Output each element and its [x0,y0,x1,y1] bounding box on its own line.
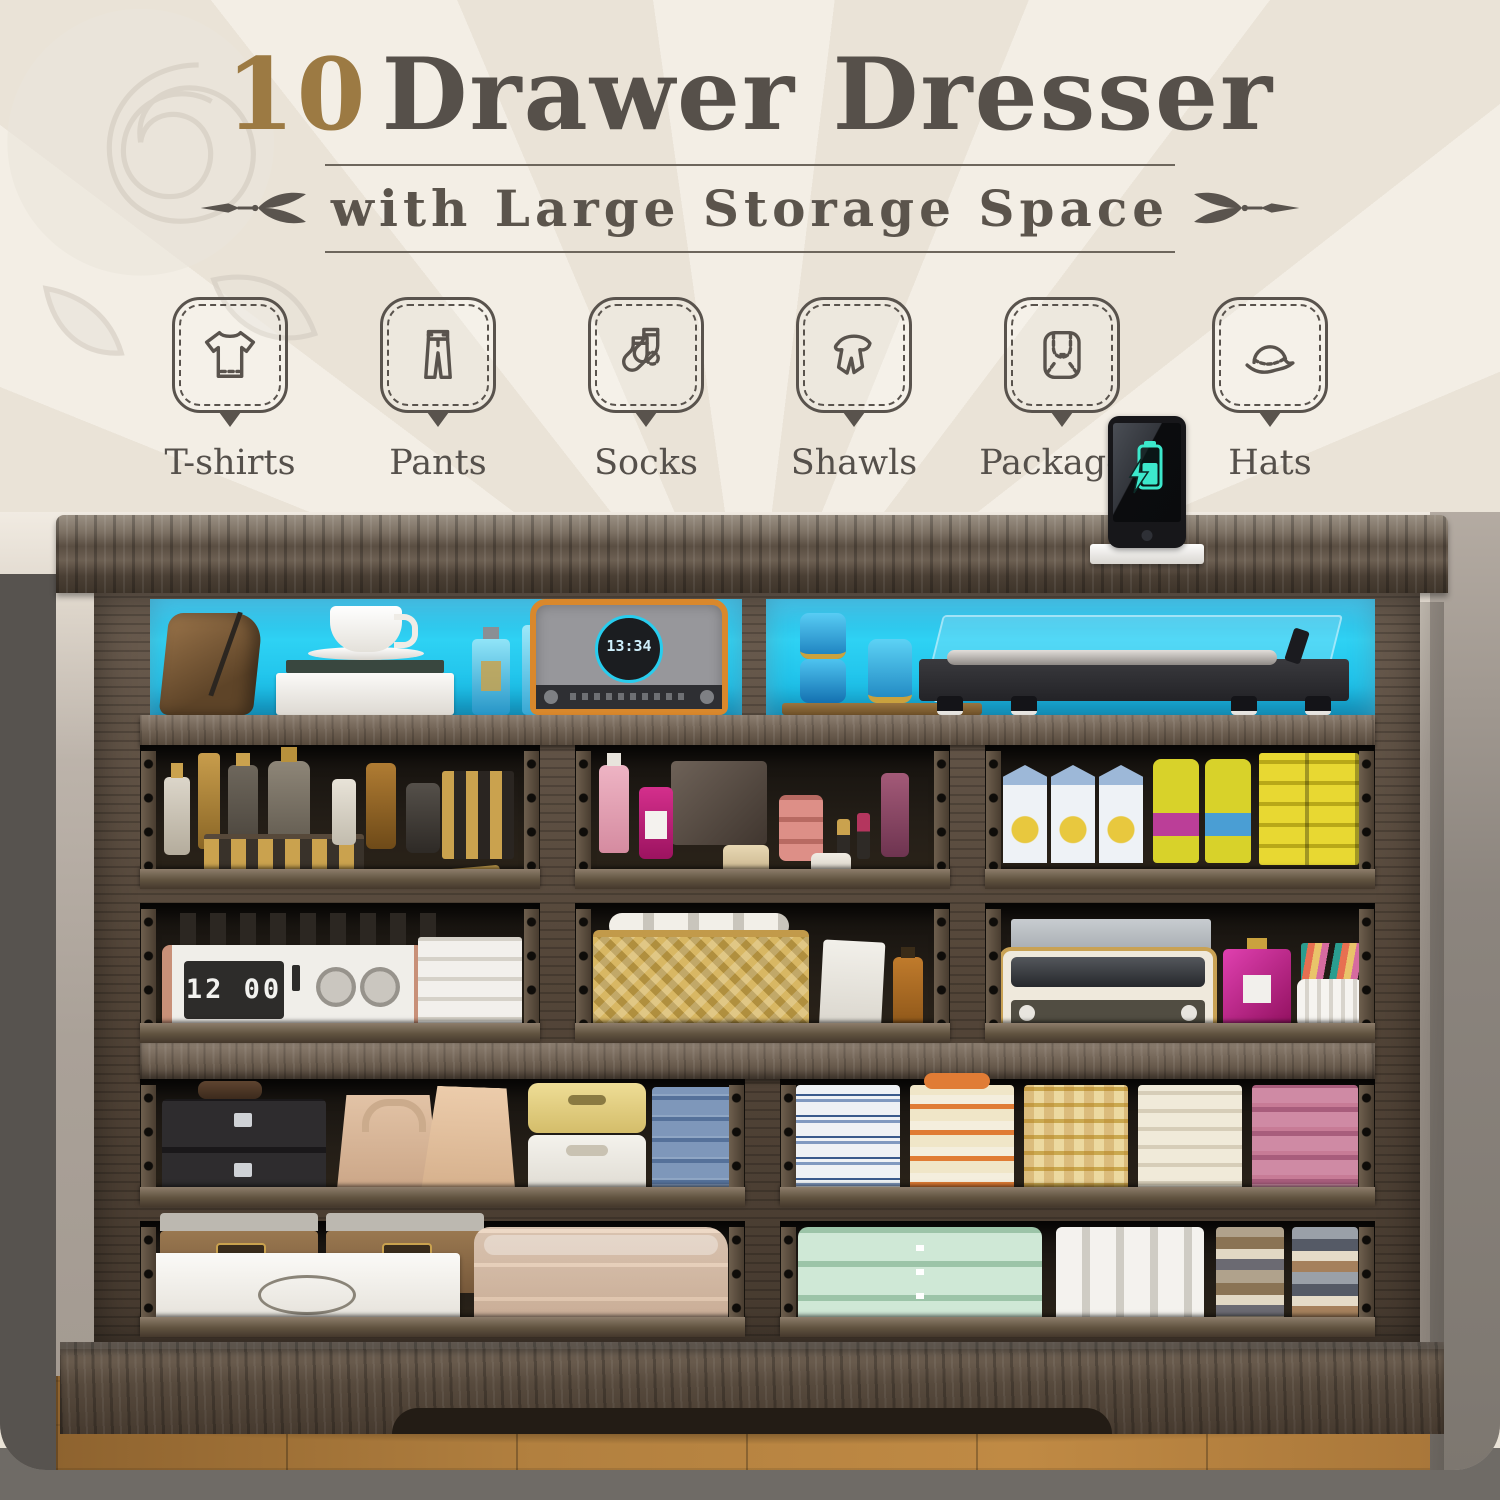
item-white-books [418,937,522,1037]
item-bottle [332,779,356,845]
phone-home-button [1142,530,1153,541]
drawer-r1-left [140,745,540,889]
drawer-front [140,869,540,889]
detail [234,1163,252,1177]
detail [208,612,242,697]
ornament-right-icon [1183,183,1303,233]
detail [316,967,356,1007]
drawer-r3-right [780,1079,1375,1207]
drawer-front [575,869,950,889]
item-blue-jar [868,639,912,703]
detail [394,614,418,648]
feature-label: T-shirts [164,443,295,483]
drawer-r3-left [140,1079,745,1207]
item-yellow-bin [528,1083,646,1133]
charging-phone [1108,416,1186,548]
detail [568,1095,606,1105]
item-yellow-canister [1153,759,1199,863]
base-arch-cutout [392,1408,1112,1434]
item-shirt-stack-pink [1252,1085,1358,1199]
feature-label: Hats [1228,443,1311,483]
flip-clock-display: 12 00 [184,961,284,1019]
shawl-icon [796,297,912,413]
item-lipstick [857,813,870,859]
detail [536,685,722,709]
title-text: Drawer Dresser [382,37,1275,153]
drawer-front [985,869,1375,889]
drawer-front [140,1317,745,1337]
feature-tshirts: T-shirts [154,297,306,483]
detail [160,1213,318,1231]
product-infographic: 10Drawer Dresser with Large Storage Spac… [0,0,1500,1500]
detail [1019,1005,1035,1021]
detail [544,690,558,704]
detail [924,1073,990,1089]
item-shirt-stack-orange [910,1085,1014,1199]
item-shirt-stack-plaid [1024,1085,1128,1199]
feature-pants: Pants [362,297,514,483]
item-pens [1301,943,1361,983]
item-leather-bag [159,613,264,715]
feature-row: T-shirts Pants S [0,297,1500,483]
item-carton [1003,765,1047,863]
drawer-r1-right [985,745,1375,889]
item-mirror-palette [671,761,767,845]
item-beige-blanket [474,1227,728,1331]
item-vintage-radio [999,947,1217,1035]
dresser-base [60,1342,1444,1434]
detail [1181,1005,1197,1021]
item-yellow-canister [1205,759,1251,863]
shelf-board [140,715,1375,745]
item-teacup [330,606,402,652]
drawer-r2-middle [575,903,950,1043]
phone-screen [1113,423,1181,522]
item-shirt-stack-cream [1138,1085,1242,1199]
subtitle: with Large Storage Space [325,179,1175,238]
charging-battery-icon [1127,437,1169,499]
item-yellow-box-stack [1259,753,1359,865]
item-record-player [919,615,1349,715]
detail [919,659,1349,701]
drawer-r4-right [780,1221,1375,1337]
item-perfume-cube [1223,949,1291,1029]
item-jewellery-boxes [162,1099,326,1199]
subtitle-block: with Large Storage Space [325,164,1175,253]
radio-clock-display: 13:34 [595,615,663,683]
detail [481,661,501,691]
hat-icon [1212,297,1328,413]
item-blue-jar [800,659,846,703]
detail [362,1099,426,1132]
item-perfume-bottle [472,639,510,715]
ornament-left-icon [197,183,317,233]
detail [234,1113,252,1127]
item-white-box [819,939,886,1036]
detail [937,696,963,715]
detail [326,1213,484,1231]
dresser-body: 13:34 [94,593,1420,1345]
detail [1011,696,1037,715]
feature-label: Shawls [791,443,918,483]
detail [483,627,499,639]
detail [947,650,1277,665]
led-shelf-left: 13:34 [150,599,742,715]
page-title: 10Drawer Dresser [0,44,1500,148]
detail [607,753,621,766]
item-amber-bottle [893,957,923,1033]
detail [1011,957,1205,987]
drawer-r2-right [985,903,1375,1043]
feature-socks: Socks [570,297,722,483]
middle-rail [140,1043,1375,1079]
item-vials [442,771,514,859]
divider-line [325,251,1175,253]
detail [700,690,714,704]
item-carton [1051,765,1095,863]
detail [484,1235,718,1255]
item-retro-radio: 13:34 [530,599,728,715]
drawer-r1-middle [575,745,950,889]
detail [360,967,400,1007]
item-blue-jar [800,613,846,659]
item-bottle [406,783,440,853]
socks-icon [588,297,704,413]
item-rattan-basket [593,930,809,1035]
detail [281,747,297,762]
feature-label: Pants [389,443,486,483]
detail [292,965,300,991]
wall-left-panel [0,574,56,1470]
package-icon [1004,297,1120,413]
detail [1231,696,1257,715]
drawer-r4-left [140,1221,745,1337]
product-photo: 13:34 [0,512,1500,1470]
drawer-front [140,1023,540,1043]
drawer-r2-left: 12 00 [140,903,540,1043]
item-clothes-stack [1216,1227,1284,1329]
drawer-front [985,1023,1375,1043]
item-carton [1099,765,1143,863]
item-blush-jars [779,795,823,861]
item-bottle [366,763,396,849]
detail [1243,975,1271,1003]
detail [566,1145,608,1156]
item-bottle [164,777,190,855]
detail [258,1275,356,1315]
dresser-top [56,515,1448,593]
item-magenta-canister [639,787,673,859]
led-shelf-right [766,599,1375,715]
detail [916,1233,924,1323]
drawer-front [140,1187,745,1207]
item-round-box [198,1081,262,1099]
drawer-front [575,1023,950,1043]
item-clothes-stack [1292,1227,1358,1329]
pants-icon [380,297,496,413]
item-shirt-stack-blue [796,1085,900,1199]
item-book-stack [276,673,454,715]
header: 10Drawer Dresser with Large Storage Spac… [0,44,1500,253]
item-pink-tube [599,765,629,853]
detail [171,763,183,778]
item-mint-sweaters [798,1227,1042,1329]
item-jeans-column [652,1087,736,1199]
title-number: 10 [226,37,368,153]
item-handbag [420,1085,520,1200]
detail [570,693,688,700]
drawer-front [780,1187,1375,1207]
item-white-garments [1056,1227,1204,1329]
item-book [286,660,444,673]
detail [645,811,667,839]
drawer-front [780,1317,1375,1337]
divider-line [325,164,1175,166]
item-dark-bottles [180,913,440,947]
detail [1305,696,1331,715]
tshirt-icon [172,297,288,413]
phone [1108,416,1186,548]
detail [901,947,915,958]
feature-label: Socks [594,443,698,483]
item-spray-bottle [881,773,909,857]
feature-shawls: Shawls [778,297,930,483]
detail [1247,938,1267,949]
detail [236,753,250,766]
feature-hats: Hats [1194,297,1346,483]
